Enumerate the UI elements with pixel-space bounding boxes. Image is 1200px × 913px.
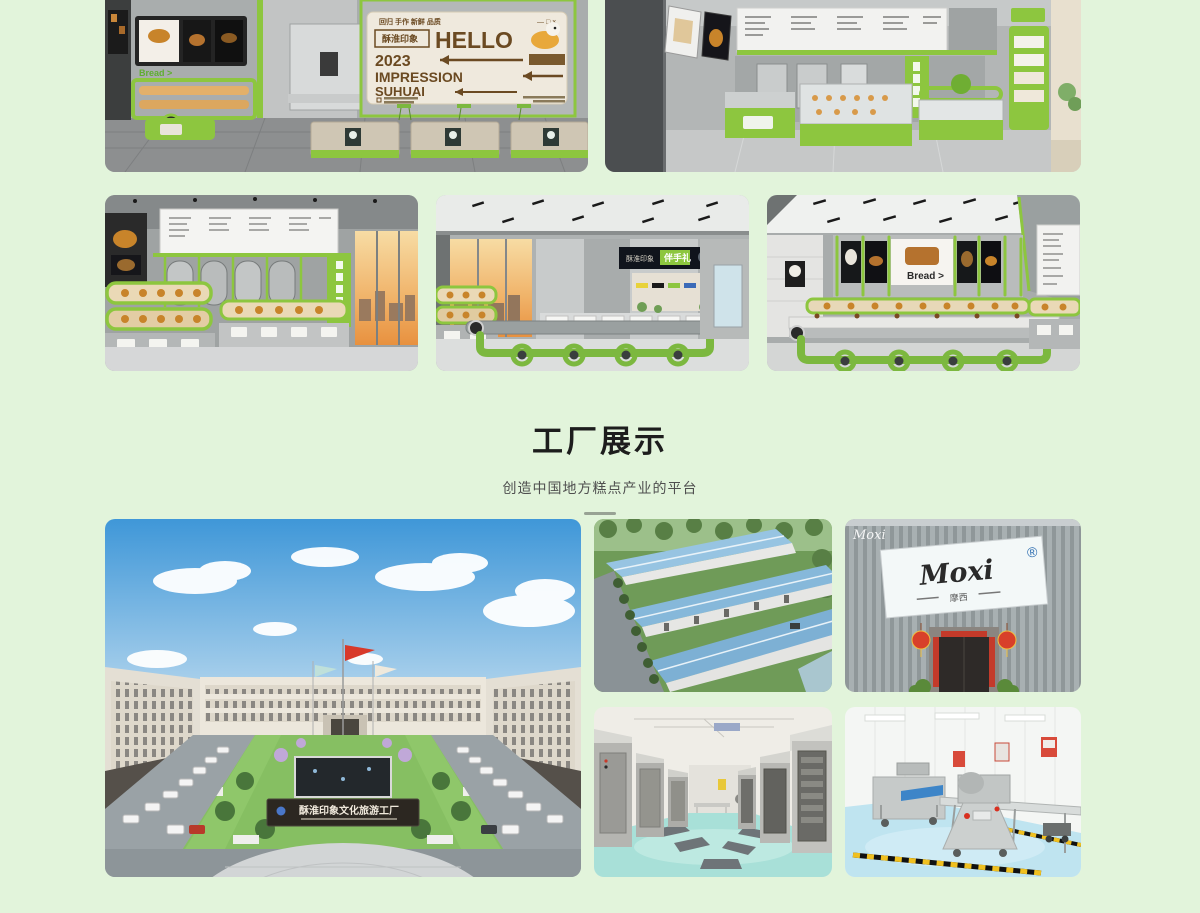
banner-brand: 酥淮印象 <box>626 254 654 263</box>
storefront-render-art: Bread > 回归 <box>105 0 588 172</box>
gallery-image-production-line <box>845 707 1081 877</box>
factory-section-header: 工厂展示 创造中国地方糕点产业的平台 <box>0 416 1200 515</box>
sunset-window <box>355 231 418 345</box>
gallery-image-factory-campus: 酥淮印象文化旅游工厂 <box>105 519 581 877</box>
section-divider <box>584 512 616 515</box>
ceiling-menu-board <box>737 8 997 55</box>
gallery-image-mall-store-render <box>605 0 1081 172</box>
bread-label: Bread > <box>139 68 172 78</box>
moxi-logo-text: Moxi <box>917 555 995 592</box>
gallery-image-warehouse-aerial <box>594 519 832 692</box>
registered-mark: ® <box>1026 544 1038 561</box>
gallery-image-storefront-render: Bread > 回归 <box>105 0 588 172</box>
gallery-image-moxi-storefront: Moxi Moxi ® 摩西 <box>845 519 1081 692</box>
mall-store-art <box>605 0 1081 172</box>
gallery-image-oven-room <box>594 707 832 877</box>
section-title: 工厂展示 <box>0 416 1200 461</box>
factory-sign-text: 酥淮印象文化旅游工厂 <box>299 804 399 817</box>
factory-sign: 酥淮印象文化旅游工厂 <box>267 799 419 826</box>
mall-pillar <box>605 0 663 172</box>
factory-campus-art: 酥淮印象文化旅游工厂 <box>105 519 581 877</box>
poster-nav-tabs: 回归 手作 新鲜 品质 <box>379 17 441 26</box>
moxi-chinese: 摩西 <box>949 591 968 604</box>
poster-line1: IMPRESSION <box>375 69 463 85</box>
warehouse-aerial-art <box>594 519 832 692</box>
production-line-art <box>845 707 1081 877</box>
entrance <box>929 627 999 692</box>
right-wall-door <box>700 239 749 339</box>
mall-corridor <box>1051 0 1081 172</box>
right-cabinet <box>1009 8 1049 130</box>
outdoor-counters <box>311 122 588 158</box>
moxi-sign: Moxi ® 摩西 <box>880 536 1047 618</box>
moxi-watermark: Moxi <box>852 528 886 543</box>
hanging-posters <box>665 6 731 60</box>
poster-line2: SUHUAI <box>375 84 425 99</box>
section-subtitle: 创造中国地方糕点产业的平台 <box>0 478 1200 498</box>
bread-sign: Bread > <box>907 271 944 282</box>
hello-poster: 回归 手作 新鲜 品质 — □ × 酥淮印象 HELLO 2023 IMPRES… <box>361 0 575 116</box>
gallery-image-interior-render-3: Bread > <box>767 195 1080 371</box>
bread-counters <box>789 299 1059 340</box>
gallery-image-interior-render-1 <box>105 195 418 371</box>
moxi-storefront-art: Moxi Moxi ® 摩西 <box>845 519 1081 692</box>
poster-wall: Bread > <box>833 235 1023 297</box>
poster-brand: 酥淮印象 <box>382 33 418 44</box>
right-side-case <box>1029 299 1080 349</box>
poster-headline: HELLO <box>435 27 513 53</box>
interior-1-art <box>105 195 418 371</box>
oven-room-art <box>594 707 832 877</box>
interior-3-art: Bread > <box>767 195 1080 371</box>
menu-lightbox <box>153 209 345 257</box>
vent <box>714 723 740 731</box>
gallery-image-interior-render-2: 酥淮印象 伴手礼 <box>436 195 749 371</box>
poster-year: 2023 <box>375 53 411 70</box>
page-background: Bread > 回归 <box>0 0 1200 913</box>
banner-label: 伴手礼 <box>663 252 691 263</box>
left-poster-column <box>105 213 147 287</box>
interior-2-art: 酥淮印象 伴手礼 <box>436 195 749 371</box>
